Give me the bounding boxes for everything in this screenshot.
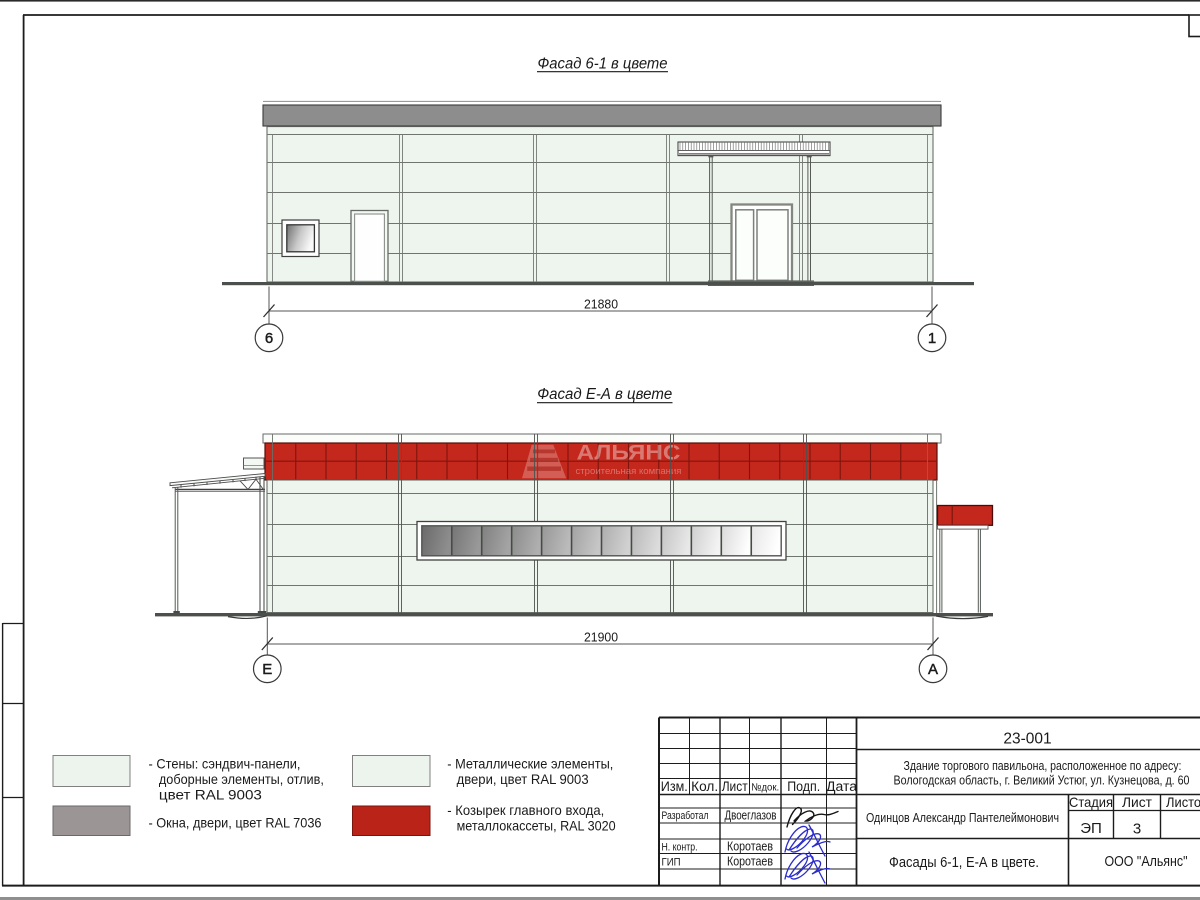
svg-text:Кол.: Кол. [691, 779, 718, 794]
svg-text:21900: 21900 [584, 629, 618, 644]
svg-text:Фасад 6-1 в цвете: Фасад 6-1 в цвете [538, 55, 668, 72]
svg-text:1: 1 [928, 330, 936, 347]
svg-text:21880: 21880 [584, 296, 618, 311]
svg-text:Лист: Лист [1122, 794, 1153, 810]
svg-text:Изм.: Изм. [661, 779, 688, 794]
svg-text:двери, цвет RAL 9003: двери, цвет RAL 9003 [457, 771, 589, 787]
svg-text:Разработал: Разработал [662, 810, 709, 822]
svg-text:Вологодская область, г. Велики: Вологодская область, г. Великий Устюг, у… [894, 773, 1190, 788]
svg-text:Здание торгового павильона, ра: Здание торгового павильона, расположенно… [904, 758, 1182, 773]
svg-text:- Козырек главного входа,: - Козырек главного входа, [447, 802, 604, 818]
svg-text:Лист: Лист [722, 779, 748, 794]
svg-text:АЛЬЯНС: АЛЬЯНС [577, 442, 681, 465]
svg-text:- Стены: сэндвич-панели,: - Стены: сэндвич-панели, [149, 755, 301, 771]
svg-text:3: 3 [1133, 821, 1141, 838]
svg-text:- Окна, двери, цвет RAL 7036: - Окна, двери, цвет RAL 7036 [149, 814, 322, 830]
svg-text:строительная компания: строительная компания [576, 466, 682, 477]
svg-text:ООО "Альянс": ООО "Альянс" [1105, 854, 1188, 870]
svg-text:- Металлические элементы,: - Металлические элементы, [447, 755, 613, 771]
svg-text:Стадия: Стадия [1069, 794, 1113, 810]
svg-text:Фасад Е-А в цвете: Фасад Е-А в цвете [537, 386, 672, 403]
svg-text:Коротаев: Коротаев [727, 855, 773, 869]
svg-text:6: 6 [265, 330, 273, 347]
svg-text:Листов: Листов [1166, 794, 1200, 810]
svg-text:Подп.: Подп. [787, 779, 820, 794]
svg-text:Е: Е [262, 661, 272, 678]
svg-text:ЭП: ЭП [1080, 820, 1102, 837]
svg-text:Н. контр.: Н. контр. [662, 841, 698, 853]
svg-text:Коротаев: Коротаев [727, 840, 773, 854]
svg-text:Фасады 6-1, Е-А в цвете.: Фасады 6-1, Е-А в цвете. [889, 855, 1039, 871]
svg-text:Дата: Дата [826, 779, 857, 794]
svg-text:23-001: 23-001 [1003, 731, 1051, 748]
svg-text:А: А [928, 661, 938, 678]
svg-text:Одинцов Александр Пантелеймоно: Одинцов Александр Пантелеймонович [866, 811, 1059, 825]
svg-text:цвет RAL 9003: цвет RAL 9003 [159, 787, 262, 803]
svg-text:доборные элементы, отлив,: доборные элементы, отлив, [159, 771, 324, 787]
svg-text:ГИП: ГИП [662, 856, 681, 868]
svg-text:металлокассеты, RAL 3020: металлокассеты, RAL 3020 [457, 817, 616, 833]
svg-text:№док.: №док. [751, 781, 779, 793]
svg-text:Двоеглазов: Двоеглазов [725, 808, 777, 822]
